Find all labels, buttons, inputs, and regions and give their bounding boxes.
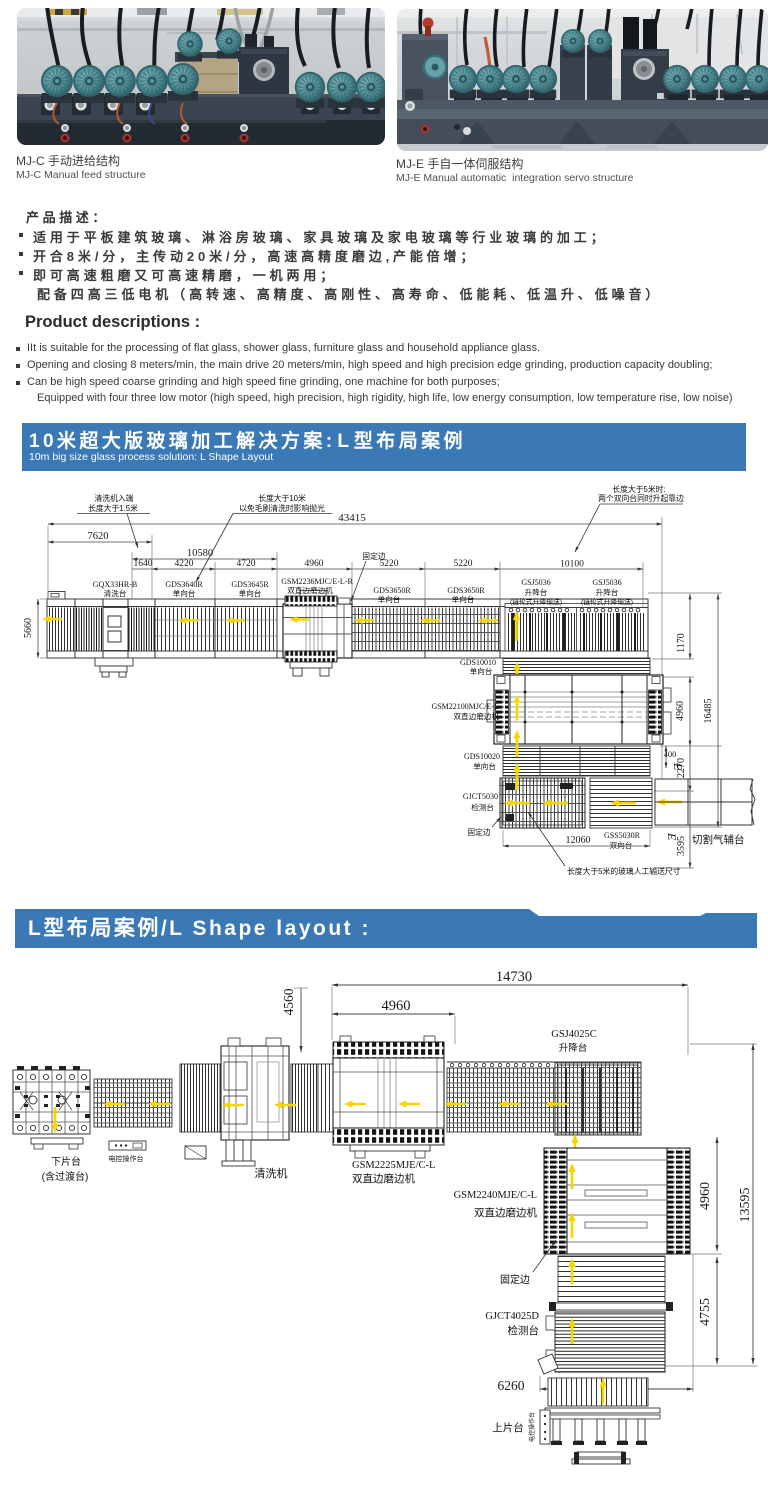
svg-text:清洗机入端: 清洗机入端 — [95, 493, 134, 503]
svg-text:GDS10020: GDS10020 — [464, 752, 500, 761]
svg-text:GDS10010: GDS10010 — [460, 658, 496, 667]
svg-text:固定边: 固定边 — [467, 827, 491, 837]
svg-text:4755: 4755 — [698, 1298, 713, 1326]
svg-text:清洗台: 清洗台 — [104, 588, 127, 598]
svg-text:单向台: 单向台 — [173, 588, 196, 598]
svg-text:固定边: 固定边 — [362, 551, 386, 561]
svg-text:GSM2225MJE/C-L: GSM2225MJE/C-L — [352, 1160, 435, 1171]
svg-text:1170: 1170 — [676, 633, 687, 653]
svg-text:检测台: 检测台 — [471, 802, 494, 812]
svg-text:双直边磨边机: 双直边磨边机 — [352, 1172, 415, 1185]
svg-text:单向台: 单向台 — [452, 594, 475, 604]
svg-text:GSM22100MJC/E-L: GSM22100MJC/E-L — [431, 702, 499, 711]
svg-text:双直边磨边机: 双直边磨边机 — [287, 585, 333, 595]
svg-text:GDS3650R: GDS3650R — [373, 586, 411, 595]
svg-text:电控操作台: 电控操作台 — [528, 1412, 536, 1442]
svg-text:4960: 4960 — [305, 559, 324, 569]
svg-text:4220: 4220 — [175, 559, 194, 569]
svg-text:14730: 14730 — [496, 969, 532, 985]
svg-text:GJCT5030: GJCT5030 — [463, 792, 498, 801]
svg-text:下片台: 下片台 — [51, 1155, 81, 1168]
svg-text:升降台: 升降台 — [596, 587, 619, 597]
svg-text:GDS3640R: GDS3640R — [165, 580, 203, 589]
svg-text:GQX33HR-B: GQX33HR-B — [93, 580, 137, 589]
svg-text:4960: 4960 — [382, 998, 411, 1014]
svg-text:清洗机: 清洗机 — [255, 1166, 288, 1180]
svg-text:GSJ4025C: GSJ4025C — [551, 1029, 597, 1040]
svg-text:GDS3650R: GDS3650R — [447, 586, 485, 595]
svg-text:16485: 16485 — [703, 699, 714, 724]
svg-text:双向台: 双向台 — [610, 840, 633, 850]
svg-text:GDS3645R: GDS3645R — [231, 580, 269, 589]
svg-text:12060: 12060 — [566, 835, 591, 846]
svg-text:13595: 13595 — [738, 1188, 753, 1223]
svg-text:5660: 5660 — [23, 618, 34, 638]
svg-text:GSJ5036: GSJ5036 — [592, 578, 621, 587]
svg-text:GSM2236MJC/E-L-R: GSM2236MJC/E-L-R — [281, 577, 353, 586]
svg-text:两个双向台同时升起靠边: 两个双向台同时升起靠边 — [598, 493, 684, 503]
svg-text:双直边磨边机: 双直边磨边机 — [453, 711, 499, 721]
svg-text:长度大于5米的玻璃人工输送尺寸: 长度大于5米的玻璃人工输送尺寸 — [567, 866, 681, 876]
svg-text:升降台: 升降台 — [525, 587, 548, 597]
svg-text:升降台: 升降台 — [559, 1042, 588, 1054]
svg-text:切割气辅台: 切割气辅台 — [692, 833, 745, 846]
svg-text:E: E — [671, 762, 685, 771]
svg-text:长度大于10米: 长度大于10米 — [258, 493, 306, 503]
svg-text:长度大于1.5米: 长度大于1.5米 — [88, 503, 138, 513]
svg-text:以免毛刷清洗时影响抛光: 以免毛刷清洗时影响抛光 — [239, 503, 325, 513]
svg-text:GSJ5036: GSJ5036 — [521, 578, 550, 587]
svg-text:5220: 5220 — [454, 559, 473, 569]
svg-text:单向台: 单向台 — [473, 761, 496, 771]
svg-text:GJCT4025D: GJCT4025D — [485, 1311, 539, 1322]
svg-text:4960: 4960 — [675, 701, 686, 721]
svg-text:400: 400 — [664, 749, 677, 759]
svg-text:上片台: 上片台 — [492, 1421, 524, 1434]
svg-text:(含过渡台): (含过渡台) — [42, 1170, 89, 1183]
svg-text:4720: 4720 — [237, 559, 256, 569]
svg-text:(链轮式升降输送): (链轮式升降输送) — [510, 597, 562, 606]
svg-text:10100: 10100 — [560, 560, 584, 570]
svg-text:检测台: 检测台 — [508, 1324, 540, 1337]
svg-text:4960: 4960 — [698, 1182, 713, 1210]
svg-text:43415: 43415 — [338, 512, 366, 524]
svg-text:(链轮式升降输送): (链轮式升降输送) — [581, 597, 633, 606]
svg-text:E: E — [665, 832, 679, 841]
svg-text:单向台: 单向台 — [470, 666, 493, 676]
svg-text:单向台: 单向台 — [378, 594, 401, 604]
svg-text:6260: 6260 — [498, 1378, 525, 1393]
svg-text:长度大于5米时:: 长度大于5米时: — [612, 484, 665, 494]
svg-text:1640: 1640 — [134, 559, 153, 569]
svg-text:单向台: 单向台 — [239, 588, 262, 598]
svg-text:7620: 7620 — [88, 531, 109, 542]
svg-text:固定边: 固定边 — [500, 1273, 530, 1286]
svg-text:GSS5030R: GSS5030R — [604, 831, 641, 840]
svg-text:4560: 4560 — [281, 988, 296, 1015]
svg-text:电控操作台: 电控操作台 — [109, 1154, 144, 1163]
svg-text:双直边磨边机: 双直边磨边机 — [474, 1206, 537, 1219]
svg-text:GSM2240MJE/C-L: GSM2240MJE/C-L — [454, 1190, 537, 1201]
